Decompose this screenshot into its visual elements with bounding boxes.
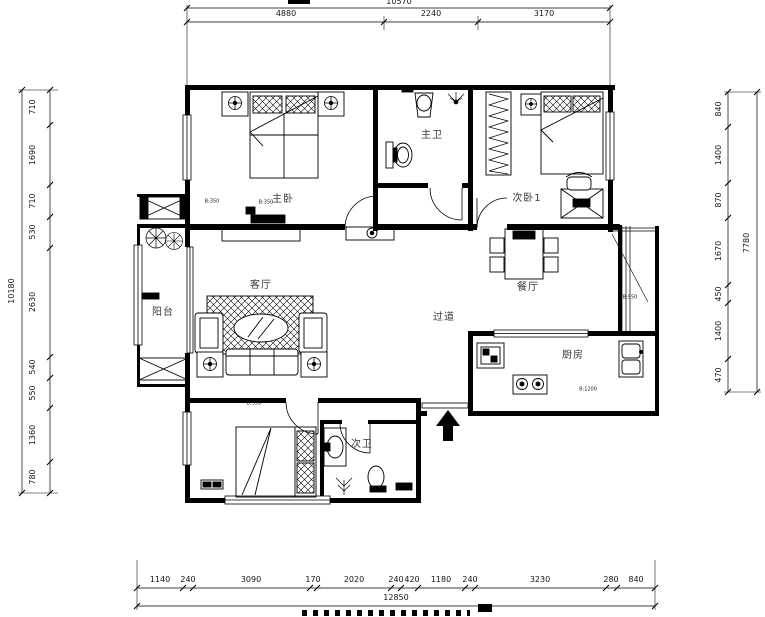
pillow: [544, 96, 571, 112]
room-label-kitchen: 厨房: [562, 351, 584, 361]
dim-bottom-seg-4: 2020: [344, 576, 364, 584]
dim-bottom-seg-1: 240: [180, 576, 195, 584]
room-label-master-bath: 主卫: [421, 131, 443, 141]
dim-left-seg-7: 1360: [29, 425, 37, 445]
dim-top-seg-1: 2240: [421, 10, 441, 18]
annotation: B:350: [259, 201, 274, 206]
dim-top-seg-0: 4880: [276, 10, 296, 18]
dim-left-total: 10180: [8, 278, 16, 303]
dim-bottom-seg-7: 1180: [431, 576, 451, 584]
dim-top-seg-2: 3170: [534, 10, 554, 18]
annotation: B:350: [247, 402, 262, 407]
dim-bottom-seg-8: 240: [462, 576, 477, 584]
sofa: [226, 349, 298, 375]
tv: [251, 215, 285, 223]
annotation: B:550: [623, 296, 638, 301]
dim-left-seg-0: 710: [29, 99, 37, 114]
floor-plan-sheet: 主卧 主卫 次卧1 客厅 阳台 餐厅 过道 厨房 次卫 10570 4880 2…: [0, 0, 765, 617]
dim-left-seg-8: 780: [29, 469, 37, 484]
annotation: B:350: [205, 200, 220, 205]
basin: [415, 93, 433, 117]
dim-right-seg-0: 840: [715, 101, 723, 116]
pillow: [297, 431, 314, 461]
title-block-partial: [302, 604, 492, 613]
sink: [619, 341, 643, 377]
room-label-hallway: 过道: [433, 313, 455, 323]
radiator: [142, 293, 159, 299]
dim-bottom-seg-0: 1140: [150, 576, 170, 584]
dim-right-total: 7780: [743, 233, 751, 253]
chair: [490, 257, 504, 272]
dim-right-seg-1: 1400: [715, 145, 723, 165]
dim-right-seg-4: 450: [715, 286, 723, 301]
dim-left-seg-3: 530: [29, 224, 37, 239]
room-label-master-bedroom: 主卧: [272, 195, 294, 205]
room-label-balcony: 阳台: [152, 308, 174, 318]
dim-bottom-seg-11: 840: [628, 576, 643, 584]
room-label-bath2: 次卫: [351, 440, 373, 450]
dim-bottom-seg-5: 240: [388, 576, 403, 584]
chair: [544, 238, 558, 253]
dim-bottom-seg-10: 280: [603, 576, 618, 584]
furniture: [139, 86, 643, 497]
plant-small: [336, 478, 352, 495]
dim-left-seg-4: 2630: [29, 292, 37, 312]
dim-top-total: 10570: [386, 0, 411, 6]
pillow: [573, 96, 600, 112]
dim-right-seg-6: 470: [715, 367, 723, 382]
coffee-table: [234, 314, 288, 342]
dim-bottom-seg-2: 3090: [241, 576, 261, 584]
toilet-tank: [386, 142, 393, 168]
dimension-lines: [18, 5, 761, 610]
shower-head: [448, 92, 464, 104]
room-label-bedroom2: 次卧1: [512, 194, 541, 204]
dim-bottom-seg-3: 170: [305, 576, 320, 584]
annotation: B:1200: [579, 388, 597, 393]
dim-bottom-seg-6: 420: [404, 576, 419, 584]
chair: [567, 177, 591, 190]
entrance-arrow: [436, 410, 460, 441]
pillow: [253, 96, 282, 113]
dim-bottom-seg-9: 3230: [530, 576, 550, 584]
armchair: [195, 313, 223, 353]
dim-right-seg-2: 870: [715, 192, 723, 207]
chair: [490, 238, 504, 253]
dim-left-seg-5: 540: [29, 359, 37, 374]
dim-left-seg-6: 550: [29, 385, 37, 400]
dim-bottom-total: 12850: [383, 594, 408, 602]
floor-plan-line-art: [0, 0, 765, 617]
stove: [513, 375, 547, 394]
walls: [137, 0, 659, 503]
room-label-living-room: 客厅: [250, 281, 272, 291]
dim-left-seg-2: 710: [29, 193, 37, 208]
pillow: [297, 463, 314, 493]
chair: [544, 257, 558, 272]
dim-right-seg-3: 1670: [715, 241, 723, 261]
toilet: [368, 466, 384, 488]
dim-left-seg-1: 1690: [29, 145, 37, 165]
armchair: [299, 313, 327, 353]
room-label-dining-room: 餐厅: [517, 283, 539, 293]
dim-right-seg-5: 1400: [715, 321, 723, 341]
